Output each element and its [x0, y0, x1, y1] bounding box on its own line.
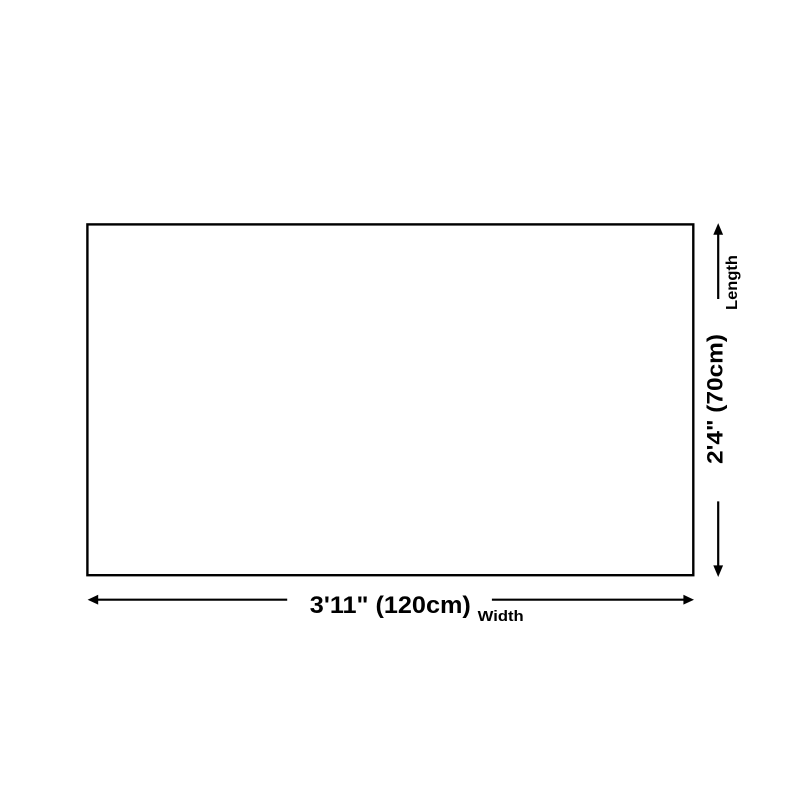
svg-text:2'4" (70cm): 2'4" (70cm): [703, 334, 728, 464]
svg-text:3'11" (120cm): 3'11" (120cm): [310, 592, 471, 619]
svg-text:Width: Width: [478, 609, 524, 625]
svg-text:Length: Length: [724, 255, 741, 310]
